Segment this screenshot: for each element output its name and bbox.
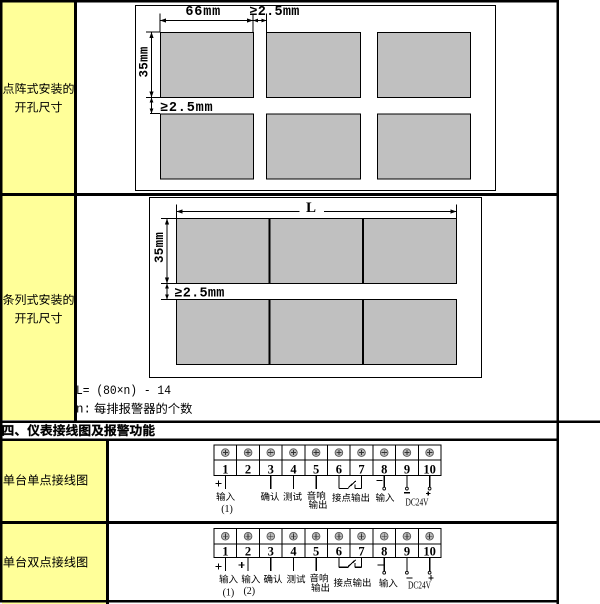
svg-text:2: 2: [245, 545, 251, 559]
svg-text:10: 10: [423, 545, 436, 559]
svg-text:6: 6: [336, 463, 342, 477]
svg-text:≥2.5mm: ≥2.5mm: [249, 5, 299, 20]
svg-text:35mm: 35mm: [153, 232, 167, 263]
svg-text:2: 2: [245, 463, 251, 477]
svg-text:9: 9: [404, 545, 410, 559]
svg-text:≥2.5mm: ≥2.5mm: [174, 287, 224, 302]
svg-text:10: 10: [423, 463, 436, 477]
svg-text:(2): (2): [243, 586, 255, 597]
svg-text:66mm: 66mm: [185, 5, 221, 20]
svg-text:DC24V: DC24V: [408, 581, 431, 592]
svg-text:3: 3: [268, 463, 274, 477]
svg-text:5: 5: [313, 463, 319, 477]
svg-text:6: 6: [336, 545, 342, 559]
svg-text:7: 7: [358, 545, 364, 559]
svg-text:4: 4: [290, 545, 297, 559]
svg-text:35mm: 35mm: [138, 46, 152, 77]
svg-text:(1): (1): [221, 504, 233, 515]
svg-text:L: L: [306, 200, 316, 216]
svg-text:L= (80×n) - 14: L= (80×n) - 14: [76, 384, 171, 398]
svg-text:7: 7: [358, 463, 364, 477]
svg-text:1: 1: [222, 545, 228, 559]
svg-text:n:: n:: [76, 403, 91, 417]
svg-text:9: 9: [404, 463, 410, 477]
svg-text:8: 8: [381, 545, 387, 559]
svg-text:≥2.5mm: ≥2.5mm: [160, 101, 213, 116]
svg-text:8: 8: [381, 463, 387, 477]
svg-text:(1): (1): [223, 588, 235, 599]
svg-text:DC24V: DC24V: [406, 498, 429, 509]
svg-text:1: 1: [222, 463, 228, 477]
svg-text:5: 5: [313, 545, 319, 559]
svg-text:3: 3: [268, 545, 274, 559]
svg-text:4: 4: [290, 463, 297, 477]
